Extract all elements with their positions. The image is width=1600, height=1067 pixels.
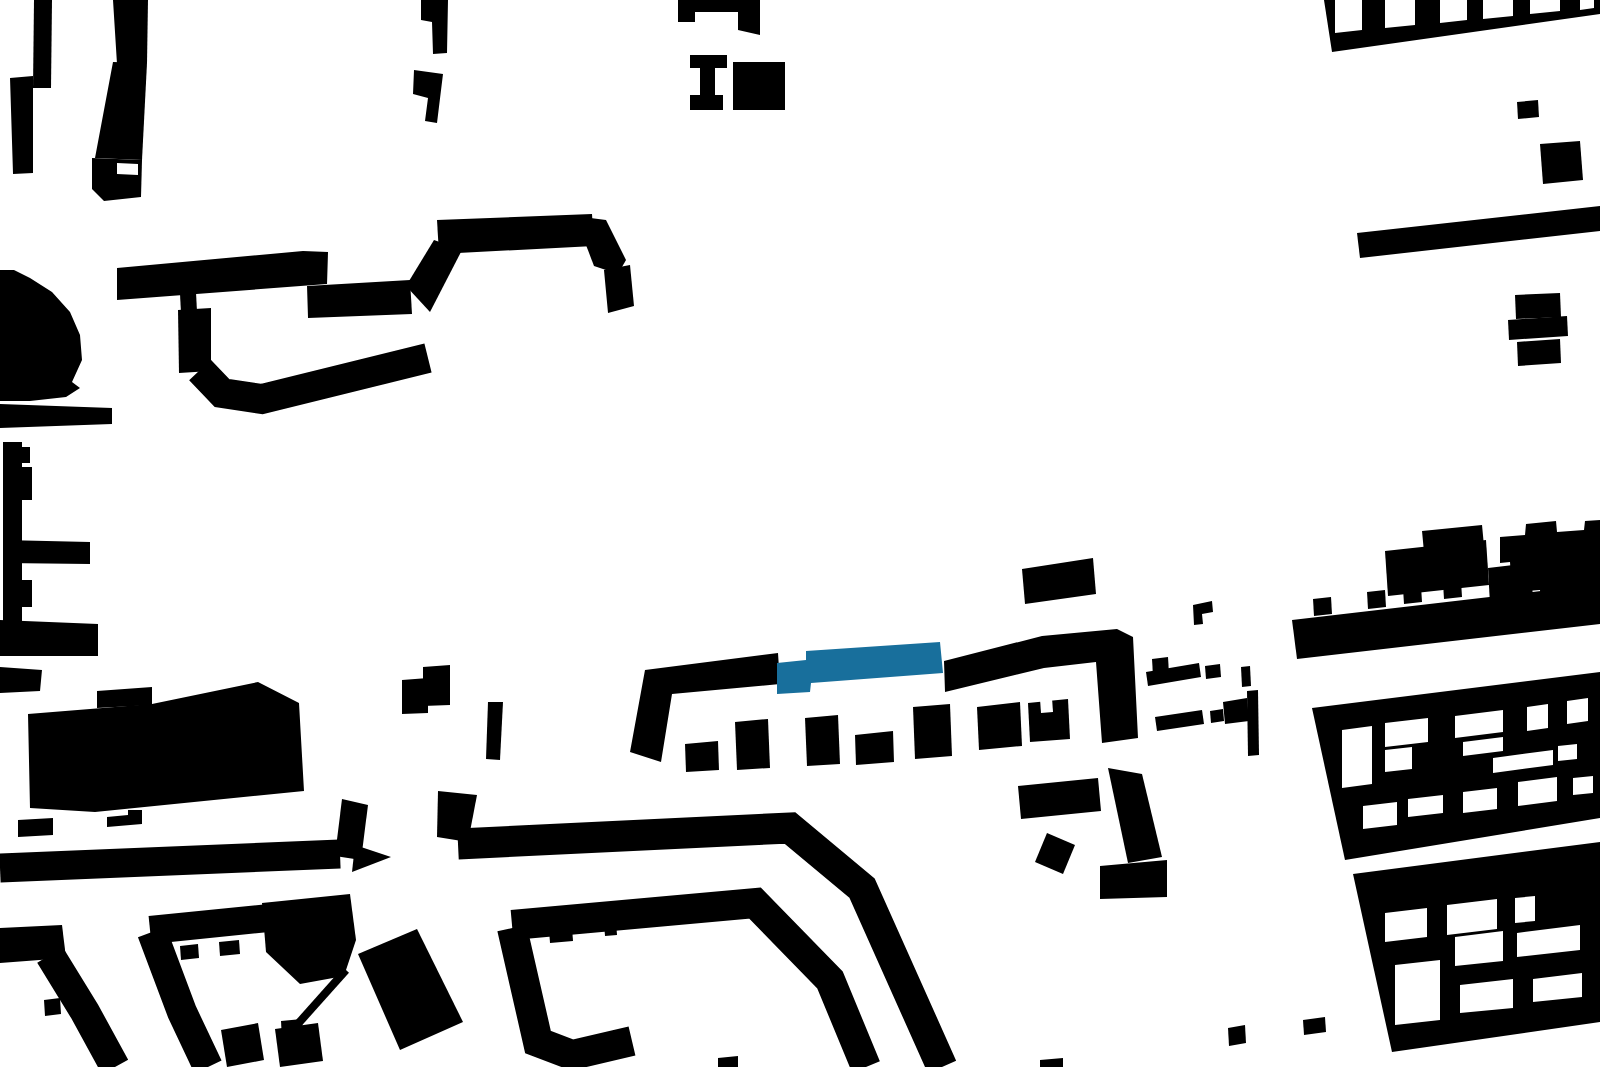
small-dash xyxy=(1303,1017,1326,1035)
zigzag-endblob xyxy=(604,265,634,313)
chain-long-tip xyxy=(352,845,391,872)
small-square xyxy=(1228,1025,1246,1046)
tilted-rect-right xyxy=(1385,540,1489,596)
bar-under-blob xyxy=(0,404,112,428)
small-tick xyxy=(1193,601,1213,625)
chain-tooth xyxy=(180,944,199,960)
bar-b1 xyxy=(113,0,148,64)
chain-tooth xyxy=(604,922,617,936)
courtyard xyxy=(1385,747,1412,772)
comb-top-notch xyxy=(1335,0,1362,33)
highlighted-building[interactable] xyxy=(777,642,943,694)
cluster-top xyxy=(1515,293,1561,319)
courtyard xyxy=(1573,776,1593,795)
courtyard xyxy=(1518,777,1557,806)
small-rect2 xyxy=(107,810,142,827)
zigzag-bottom xyxy=(200,358,428,399)
small-rect1 xyxy=(18,818,53,837)
courtyard xyxy=(1395,960,1440,1025)
row-house xyxy=(913,704,952,759)
rect-above-chain xyxy=(1022,558,1096,604)
ladder-rung3 xyxy=(3,540,90,564)
ladder-rung5 xyxy=(0,620,98,656)
big-building-step xyxy=(97,687,152,708)
square-bl xyxy=(221,1023,264,1067)
inner-chain-hook xyxy=(512,928,632,1055)
long-bar-tr xyxy=(1357,206,1600,258)
cluster-bottom xyxy=(1517,339,1561,366)
figure-ground-map xyxy=(0,0,1600,1067)
building-j xyxy=(678,0,760,35)
small-block xyxy=(1223,698,1249,724)
row-house xyxy=(805,715,840,766)
comb-top-notch xyxy=(1483,0,1513,19)
comb-top-notch xyxy=(1440,0,1467,23)
courtyard xyxy=(1455,931,1503,966)
comb-strip-tooth xyxy=(1403,586,1422,604)
small-square xyxy=(1040,1058,1063,1067)
small-dash xyxy=(1205,664,1221,679)
row-house-u-notch xyxy=(1040,698,1053,713)
comb-strip-connector xyxy=(1488,563,1533,604)
chain4-bump xyxy=(44,998,61,1016)
piece-c1 xyxy=(421,0,448,54)
row-house xyxy=(685,741,719,772)
comb-top-notch xyxy=(1385,0,1415,28)
map-canvas xyxy=(0,0,1600,1067)
courtyard xyxy=(1342,726,1372,788)
ladder-rung4 xyxy=(3,580,32,607)
courtyard xyxy=(1515,896,1535,923)
bar-a1 xyxy=(33,0,52,88)
chain-tooth xyxy=(549,927,573,943)
courtyard xyxy=(1558,744,1577,761)
comb-strip-tooth xyxy=(1443,580,1462,599)
slanted-bar xyxy=(0,667,42,693)
piece-c2 xyxy=(413,70,443,123)
small-square xyxy=(1210,709,1224,723)
small-stick xyxy=(1241,666,1251,687)
ladder-rung2 xyxy=(3,467,32,500)
bar-a2 xyxy=(10,76,33,174)
small-square xyxy=(718,1056,738,1067)
square-pair-right xyxy=(423,665,450,706)
row-house xyxy=(735,719,770,770)
small-dash xyxy=(1155,710,1204,731)
chain3-leg xyxy=(152,932,208,1067)
round-blob xyxy=(0,270,82,401)
boot-foot xyxy=(1100,860,1167,899)
bar-b2 xyxy=(95,62,147,160)
big-building xyxy=(28,682,304,812)
pentagon-b3-notch xyxy=(117,163,138,175)
rect-bottom-left xyxy=(358,929,463,1050)
courtyard xyxy=(1463,788,1497,813)
diamond-house xyxy=(1035,833,1075,874)
courtyard xyxy=(1363,802,1397,829)
zigzag-top xyxy=(437,214,594,254)
comb-strip-tooth xyxy=(1367,590,1386,609)
tilted-rect xyxy=(1018,778,1101,819)
building-square xyxy=(733,62,785,110)
square-tr1 xyxy=(1517,100,1539,119)
row-house xyxy=(855,731,894,765)
small-stick xyxy=(1247,690,1259,756)
courtyard xyxy=(1567,698,1588,724)
comb-strip-tooth xyxy=(1313,597,1332,616)
square-bl xyxy=(275,1023,323,1067)
square-tr2 xyxy=(1540,141,1583,184)
ladder-rung1 xyxy=(3,447,30,463)
courtyard xyxy=(1385,718,1428,747)
thin-bar xyxy=(486,702,503,760)
courtyard xyxy=(1385,908,1427,942)
chain-long xyxy=(0,854,340,868)
zigzag-strip2 xyxy=(307,280,412,318)
boot-bar xyxy=(1108,768,1162,863)
zigzag-vbar xyxy=(178,308,211,373)
chain-tooth xyxy=(219,940,240,956)
row-house xyxy=(977,702,1022,750)
courtyard xyxy=(1527,704,1548,731)
courtyard xyxy=(1447,899,1497,935)
building-ibeam xyxy=(690,55,727,110)
cluster-mid xyxy=(1508,316,1568,340)
zigzag-strip1 xyxy=(117,251,328,300)
